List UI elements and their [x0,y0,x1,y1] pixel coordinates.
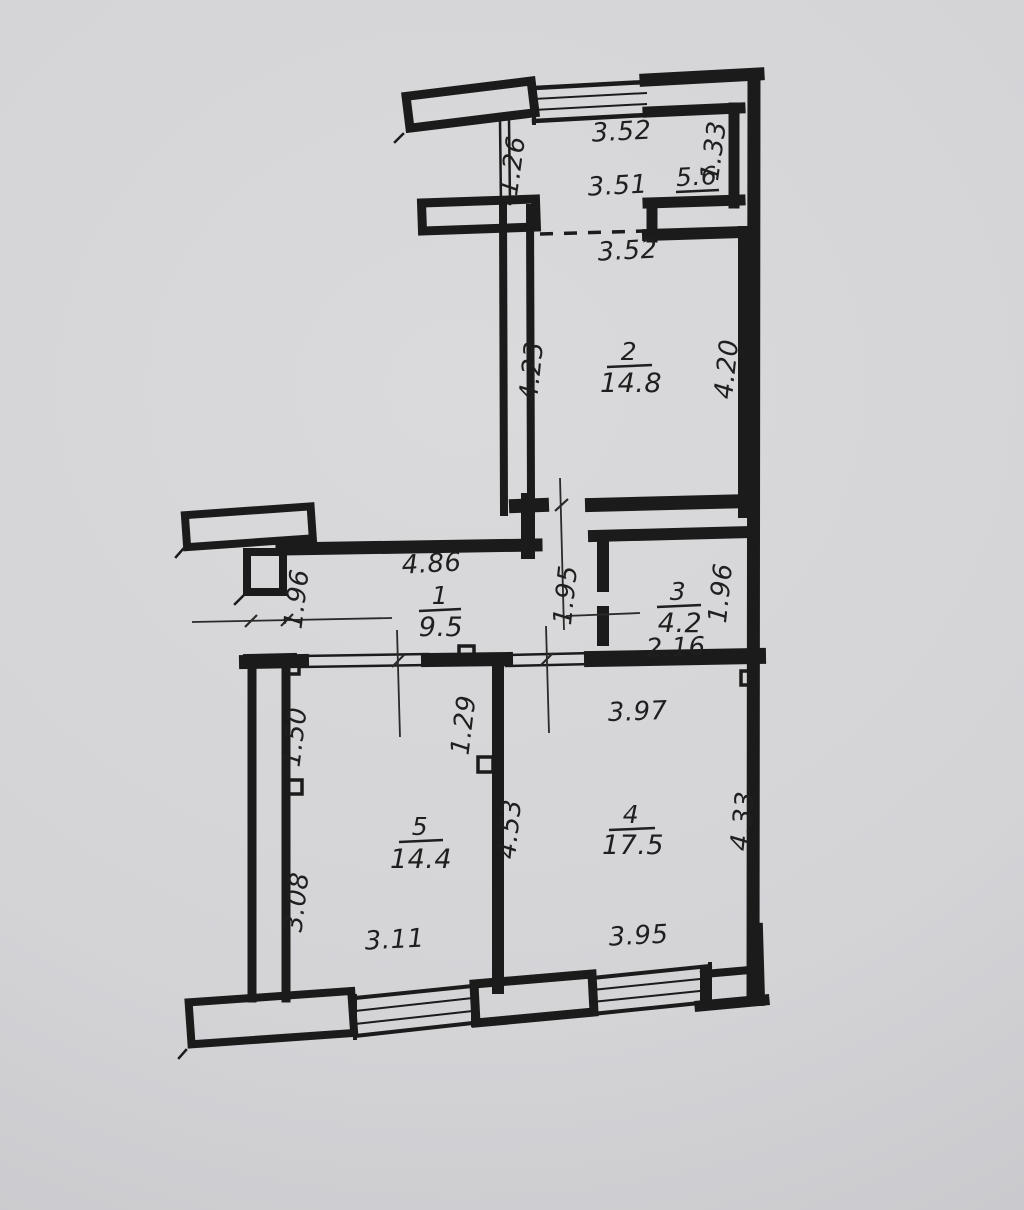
dim-room3-width: 2.16 [645,632,706,664]
dim-room5-upper-left: 1.50 [277,705,314,768]
dim-room4-left: 4.53 [492,798,528,861]
room-5-underline [399,840,443,842]
tick-mark [176,549,183,557]
dim-room4-top: 3.97 [607,696,668,728]
room-3-number: 3 [670,577,686,606]
room-1-area: 9.5 [419,612,463,643]
room-5-number: 5 [412,812,428,841]
room2-bottom-wall-right [592,501,750,505]
room-5-area: 14.4 [390,844,452,875]
room-2-label: 2 14.8 [600,337,662,399]
opening-to-room4 [506,653,592,666]
room2-top-wall [648,232,744,235]
room-2-number: 2 [621,337,637,366]
dim-room2-left: 4.23 [514,340,550,403]
room-1-label: 1 9.5 [419,581,463,643]
dim-room4-bottom: 3.95 [608,919,669,952]
dim-loggia-bottom: 3.52 [597,234,658,267]
wall-box [287,646,755,794]
room2-bottom-wall-left [516,505,542,506]
room-4-area: 17.5 [602,830,664,861]
scanned-floor-plan-photo: 3.52 1.26 3.51 5.6 1.33 3.52 2 14.8 4.23… [0,0,1024,1210]
dim-room1-width: 4.86 [401,547,462,580]
room-3-label: 3 4.2 [657,577,702,639]
room-3-underline [657,605,701,607]
room-2-underline [607,365,652,367]
left-wall-stub [185,506,313,547]
room-2-area: 14.8 [600,368,662,399]
dim-room1-right: 1.95 [548,564,584,627]
room5-window [355,984,473,1038]
dim-top-window: 3.52 [591,115,652,148]
dim-room5-bottom: 3.11 [364,923,425,956]
dim-room3-right: 1.96 [703,562,739,625]
tick-mark [395,134,403,142]
room3-top-wall [594,532,750,536]
walls [176,74,764,1058]
opening-to-room5 [302,654,428,667]
entrance-pier [247,552,283,592]
dim-room5-door: 1.29 [446,693,483,756]
dim-room4-right: 4.33 [725,790,761,853]
bottom-center-pier [474,974,594,1023]
tick-mark [179,1050,186,1058]
outer-wall-top [646,74,758,80]
room1-top-wall [282,545,536,549]
top-left-wall-stub [406,81,535,128]
balcony-t-block [422,199,537,231]
dim-room2-right: 4.20 [709,338,745,401]
loggia-dashed-boundary [540,231,645,234]
dim-loggia-width: 3.51 [587,169,648,202]
dim-room5-left: 3.08 [279,870,316,933]
room-4-label: 4 17.5 [602,800,664,861]
room-1-underline [419,609,461,611]
room-5-label: 5 14.4 [390,812,452,875]
room-1-number: 1 [432,581,448,610]
bottom-left-wall-stub [189,991,355,1044]
dim-loggia-right: 1.33 [695,119,733,182]
room4-window [592,964,710,1014]
tick-mark [235,596,243,604]
floor-plan-drawing: 3.52 1.26 3.51 5.6 1.33 3.52 2 14.8 4.23… [0,0,1024,1210]
dim-room1-left: 1.96 [279,567,316,630]
room-4-number: 4 [623,800,639,829]
